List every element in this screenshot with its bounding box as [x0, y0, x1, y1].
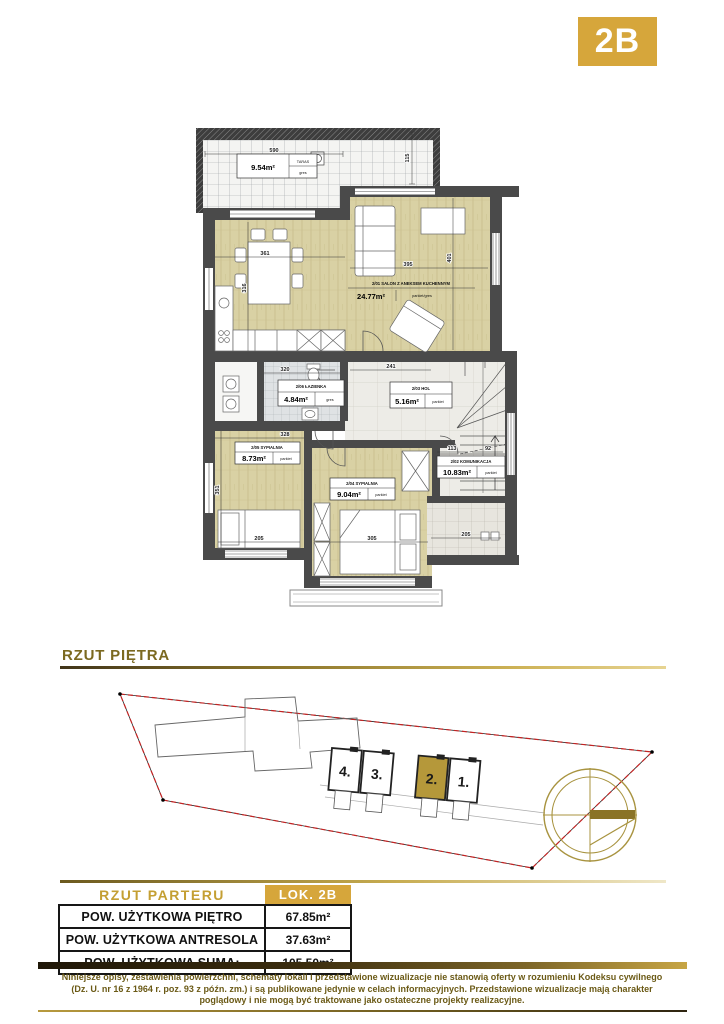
dim-hol-w: 241 — [386, 364, 395, 370]
dim-taras-h: 115 — [405, 154, 411, 163]
svg-text:2/02 KOMUNIKACJA: 2/02 KOMUNIKACJA — [451, 459, 492, 464]
dim-dining-w: 361 — [260, 251, 269, 257]
room-label-hol: 2/03 HOL 5.16m² parkiet — [390, 382, 452, 408]
svg-text:gres: gres — [326, 398, 333, 402]
room-label-komunikacja: 2/02 KOMUNIKACJA 10.83m² parkiet — [437, 456, 505, 478]
dim-syp1-h: 351 — [215, 485, 221, 494]
dim-salon-h: 401 — [447, 253, 453, 262]
svg-text:24.77m²: 24.77m² — [357, 292, 385, 301]
unit-row: 4. 3. 2. 1. — [327, 745, 481, 821]
dim-taras2-b: 205 — [461, 532, 470, 538]
kitchen-counter-left — [215, 286, 233, 351]
svg-text:9.04m²: 9.04m² — [337, 490, 361, 499]
dim-syp2-b: 305 — [367, 536, 376, 542]
table-header-row: RZUT PARTERU LOK. 2B — [59, 885, 351, 905]
svg-text:TARAS: TARAS — [297, 160, 310, 164]
svg-text:parkiet: parkiet — [432, 400, 444, 404]
bottom-rule — [38, 1010, 687, 1012]
svg-text:9.54m²: 9.54m² — [251, 163, 275, 172]
svg-text:2/04 SYPIALNIA: 2/04 SYPIALNIA — [346, 481, 378, 486]
svg-text:2/05 SYPIALNIA: 2/05 SYPIALNIA — [251, 445, 283, 450]
room-label-lazienka: 2/06 ŁAZIENKA 4.84m² gres — [278, 380, 344, 406]
row-label: POW. UŻYTKOWA PIĘTRO — [59, 905, 265, 928]
svg-text:10.83m²: 10.83m² — [443, 468, 471, 477]
svg-text:2/03 HOL: 2/03 HOL — [412, 386, 431, 391]
site-plan: 4. 3. 2. 1. — [95, 685, 655, 875]
row-value: 67.85m² — [265, 905, 351, 928]
svg-text:parkiet: parkiet — [485, 471, 497, 475]
dim-kom-1: 113 — [448, 446, 457, 452]
dim-salon-w: 395 — [403, 262, 412, 268]
page: 2B — [0, 0, 724, 1024]
table-header-left: RZUT PARTERU — [59, 885, 265, 905]
room-taras-2 — [427, 503, 505, 555]
compass-icon — [543, 768, 637, 862]
svg-text:4.84m²: 4.84m² — [284, 395, 308, 404]
table-header-lok-badge: LOK. 2B — [265, 885, 351, 905]
svg-text:8.73m²: 8.73m² — [242, 454, 266, 463]
disclaimer-band — [38, 962, 687, 969]
unit-3-label: 3. — [370, 766, 383, 783]
dim-taras-w: 590 — [269, 148, 278, 154]
coffee-table — [421, 208, 465, 234]
svg-text:parkiet: parkiet — [280, 457, 292, 461]
sofa — [355, 206, 395, 276]
room-label-taras: 9.54m² TARAS gres — [237, 154, 317, 178]
svg-text:2/06 ŁAZIENKA: 2/06 ŁAZIENKA — [296, 384, 326, 389]
table-row: POW. UŻYTKOWA ANTRESOLA 37.63m² — [59, 928, 351, 951]
dim-syp1-b: 205 — [254, 536, 263, 542]
dim-lazienka-w: 320 — [280, 367, 289, 373]
roof-edge-hatch — [203, 128, 440, 140]
svg-text:parkiet/gres: parkiet/gres — [412, 294, 432, 298]
dim-syp1-w: 328 — [280, 432, 289, 438]
row-value: 37.63m² — [265, 928, 351, 951]
svg-text:gres: gres — [299, 171, 306, 175]
section-title: RZUT PIĘTRA — [62, 647, 170, 664]
table-row: POW. UŻYTKOWA PIĘTRO 67.85m² — [59, 905, 351, 928]
floor-plan: 590 115 361 316 395 401 320 241 328 351 … — [185, 118, 535, 630]
disclaimer-line: Niniejsze opisy, zestawienia powierzchni… — [40, 972, 684, 984]
svg-text:2/01 SALON Z ANEKSEM KUCHENNY: 2/01 SALON Z ANEKSEM KUCHENNYM — [372, 281, 451, 286]
dim-kom-2: 92 — [485, 446, 491, 452]
row-label: POW. UŻYTKOWA ANTRESOLA — [59, 928, 265, 951]
unit-4-label: 4. — [339, 763, 352, 780]
gold-divider — [60, 666, 666, 669]
disclaimer: Niniejsze opisy, zestawienia powierzchni… — [40, 972, 684, 1007]
unit-2-label: 2. — [425, 770, 438, 787]
gold-divider-table — [60, 880, 666, 883]
unit-badge: 2B — [578, 17, 657, 66]
svg-text:parkiet: parkiet — [375, 493, 387, 497]
disclaimer-line: (Dz. U. nr 16 z 1964 r. poz. 93 z późn. … — [40, 984, 684, 996]
room-label-sypialnia-1: 2/05 SYPIALNIA 8.73m² parkiet — [235, 442, 300, 464]
existing-building — [155, 697, 360, 771]
svg-text:5.16m²: 5.16m² — [395, 397, 419, 406]
balcony-rail — [290, 590, 442, 606]
room-label-sypialnia-2: 2/04 SYPIALNIA 9.04m² parkiet — [330, 478, 395, 500]
disclaimer-line: poglądowy i nie mogą być traktowane jako… — [40, 995, 684, 1007]
unit-1-label: 1. — [457, 773, 470, 790]
dim-dining-h: 316 — [242, 283, 248, 292]
